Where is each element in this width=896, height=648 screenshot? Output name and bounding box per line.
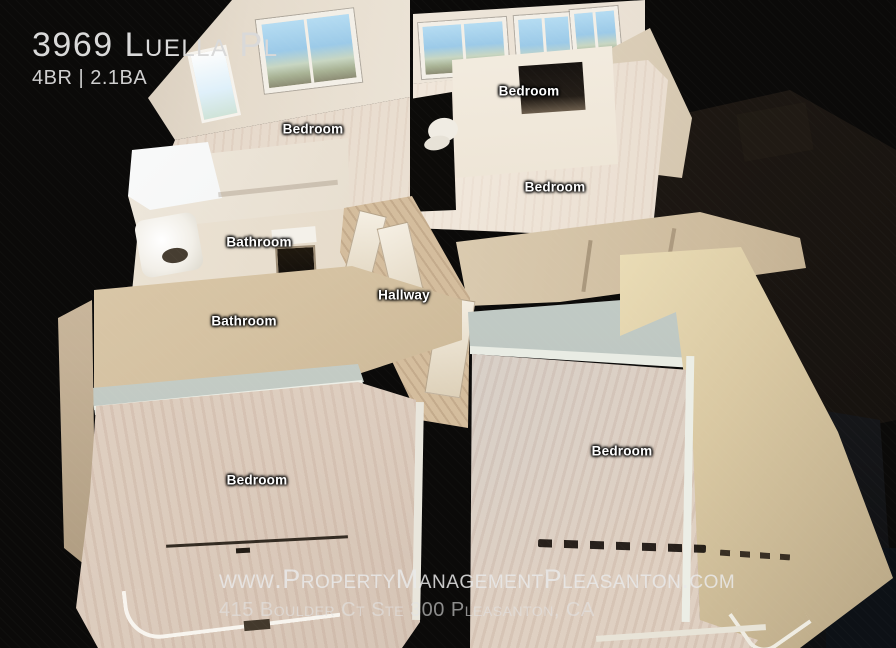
property-header: 3969 Luella Pl 4BR | 2.1BA [32, 28, 279, 90]
watermark-address: 415 Boulder Ct Ste 300 Pleasanton, CA [219, 599, 735, 622]
floorplan-3d-view: Bedroom Bedroom Bedroom Bathroom Hallway… [0, 0, 896, 648]
room-label-hallway: Hallway [378, 288, 430, 303]
property-specs: 4BR | 2.1BA [32, 67, 279, 90]
room-label-bathroom-1: Bathroom [226, 235, 291, 250]
bathtub [133, 211, 204, 279]
room-label-bathroom-2: Bathroom [211, 314, 276, 329]
room-label-bedroom-4: Bedroom [227, 473, 288, 488]
watermark: www.PropertyManagementPleasanton.com 415… [219, 564, 735, 622]
room-label-bedroom-5: Bedroom [592, 444, 653, 459]
room-label-bedroom-1: Bedroom [283, 122, 344, 137]
room-label-bedroom-2: Bedroom [499, 84, 560, 99]
room-label-bedroom-3: Bedroom [525, 180, 586, 195]
watermark-website: www.PropertyManagementPleasanton.com [219, 564, 735, 595]
baseboard-heater [236, 548, 250, 554]
property-address-title: 3969 Luella Pl [32, 28, 279, 64]
